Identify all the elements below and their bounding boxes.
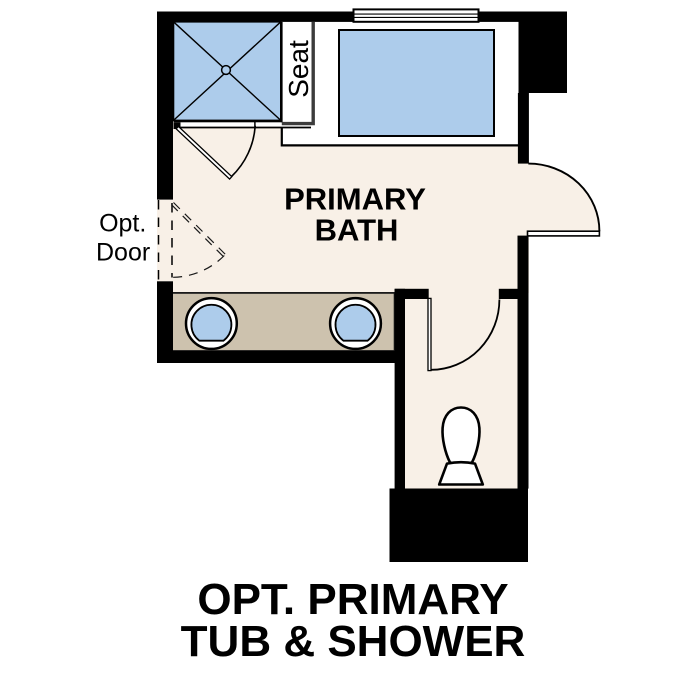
svg-text:PRIMARY: PRIMARY	[284, 182, 426, 217]
svg-text:Seat: Seat	[283, 40, 314, 98]
svg-text:Opt.: Opt.	[99, 209, 146, 237]
svg-text:BATH: BATH	[315, 213, 399, 248]
svg-text:Door: Door	[96, 239, 150, 267]
svg-text:TUB & SHOWER: TUB & SHOWER	[181, 617, 526, 666]
